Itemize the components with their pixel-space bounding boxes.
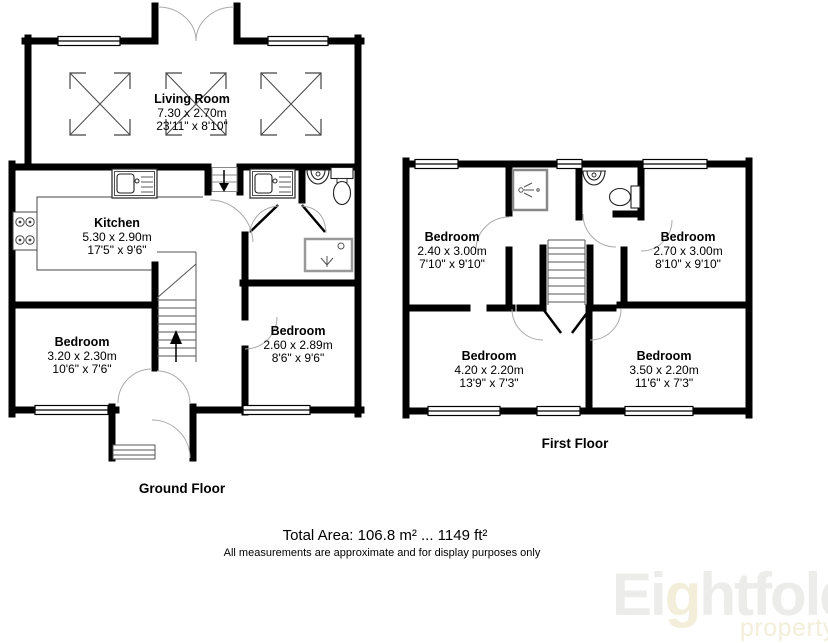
room-size-metric: 7.30 x 2.70m (154, 107, 230, 121)
shower-cubicle-icon (513, 170, 547, 210)
skylight-icon (261, 73, 321, 135)
room-name: Bedroom (417, 231, 486, 245)
window-icon (557, 160, 582, 169)
hob-icon (13, 212, 37, 250)
skylight-icon (70, 73, 130, 135)
window-icon (35, 406, 108, 415)
wall-layer (12, 6, 361, 458)
logo-brand-prefix: Ei (612, 561, 665, 628)
door-arc (118, 369, 152, 403)
toilet-icon (331, 168, 353, 205)
room-label-bedroom-ff-top-left: Bedroom 2.40 x 3.00m 7'10" x 9'10" (417, 231, 486, 272)
room-label-bedroom-gf-left: Bedroom 3.20 x 2.30m 10'6" x 7'6" (47, 336, 116, 377)
utility-sink-icon (250, 169, 295, 198)
basin-icon (306, 170, 330, 184)
door-leaf (250, 205, 278, 232)
door-leaves (543, 309, 590, 333)
window-icon (428, 407, 500, 416)
room-label-bedroom-gf-right: Bedroom 2.60 x 2.89m 8'6" x 9'6" (263, 325, 332, 366)
disclaimer-text: All measurements are approximate and for… (224, 547, 541, 559)
door-arc (512, 309, 543, 340)
room-size-imperial: 8'10" x 9'10" (653, 258, 722, 272)
room-name: Bedroom (629, 350, 698, 364)
window-icon (58, 37, 120, 46)
room-size-imperial: 23'11" x 8'10" (154, 120, 230, 134)
french-doors-icon (158, 7, 234, 41)
ground-floor-label: Ground Floor (139, 481, 225, 496)
window-icon (415, 160, 458, 169)
stairs-icon (157, 252, 196, 362)
door-arc (152, 420, 190, 458)
toilet-icon (610, 186, 641, 208)
ground-floor-plan (0, 0, 380, 475)
room-name: Kitchen (82, 217, 151, 231)
room-size-metric: 3.20 x 2.30m (47, 350, 116, 364)
room-name: Bedroom (47, 336, 116, 350)
logo-tagline: property (740, 614, 828, 643)
room-size-imperial: 7'10" x 9'10" (417, 258, 486, 272)
room-name: Bedroom (454, 350, 523, 364)
room-size-metric: 5.30 x 2.90m (82, 231, 151, 245)
room-size-metric: 2.40 x 3.00m (417, 245, 486, 259)
door-arc (583, 214, 616, 247)
shower-icon (305, 239, 352, 271)
front-step-icon (113, 445, 155, 459)
room-size-metric: 2.60 x 2.89m (263, 339, 332, 353)
floorplan-canvas: Living Room 7.30 x 2.70m 23'11" x 8'10" … (0, 0, 828, 642)
room-label-living-room: Living Room 7.30 x 2.70m 23'11" x 8'10" (154, 93, 230, 134)
basin-icon (582, 171, 606, 185)
room-size-metric: 3.50 x 2.20m (629, 364, 698, 378)
room-size-imperial: 13'9" x 7'3" (454, 377, 523, 391)
window-icon (537, 407, 580, 416)
room-size-metric: 2.70 x 3.00m (653, 245, 722, 259)
door-arc (157, 371, 190, 404)
room-size-imperial: 11'6" x 7'3" (629, 377, 698, 391)
stairs-icon (548, 240, 585, 305)
room-size-imperial: 17'5" x 9'6" (82, 244, 151, 258)
door-leaf (543, 309, 561, 333)
room-name: Living Room (154, 93, 230, 107)
room-label-bedroom-ff-top-right: Bedroom 2.70 x 3.00m 8'10" x 9'10" (653, 231, 722, 272)
room-size-imperial: 8'6" x 9'6" (263, 352, 332, 366)
kitchen-sink-icon (112, 169, 157, 198)
total-area-text: Total Area: 106.8 m² ... 1149 ft² (283, 527, 488, 544)
room-size-metric: 4.20 x 2.20m (454, 364, 523, 378)
steps-down-icon (212, 168, 237, 193)
room-name: Bedroom (263, 325, 332, 339)
room-label-bedroom-ff-bottom-right: Bedroom 3.50 x 2.20m 11'6" x 7'3" (629, 350, 698, 391)
window-icon (643, 160, 707, 169)
door-arcs (476, 214, 672, 340)
door-arc (590, 309, 621, 340)
logo-brand-accent: g (665, 561, 700, 628)
first-floor-label: First Floor (542, 436, 609, 451)
first-floor-plan (390, 150, 760, 430)
window-icon (243, 406, 310, 415)
room-label-bedroom-ff-bottom-left: Bedroom 4.20 x 2.20m 13'9" x 7'3" (454, 350, 523, 391)
window-icon (268, 37, 328, 46)
window-icon (625, 407, 693, 416)
eightfold-logo: Eightfold property (610, 564, 828, 642)
room-size-imperial: 10'6" x 7'6" (47, 363, 116, 377)
room-label-kitchen: Kitchen 5.30 x 2.90m 17'5" x 9'6" (82, 217, 151, 258)
room-name: Bedroom (653, 231, 722, 245)
